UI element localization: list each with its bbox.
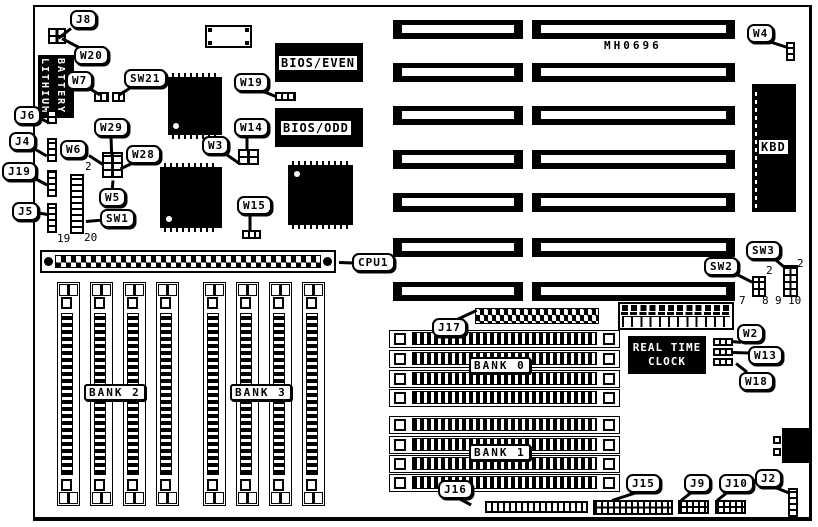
simm-socket-vertical [302, 282, 325, 506]
sw3-dip-switch [783, 265, 798, 297]
socket-end-pin [323, 257, 332, 266]
pin1-dot [294, 171, 300, 177]
socket-pin-grid [55, 255, 321, 268]
bios-even-label: BIOS/EVEN [278, 55, 358, 71]
callout-tail [110, 136, 114, 154]
callout-w14: W14 [234, 118, 269, 137]
pin-number-sw2-7: 7 [739, 295, 746, 307]
callout-w29: W29 [94, 118, 129, 137]
isa-slot-segment [532, 193, 735, 212]
pin-number-sw3-9: 9 [775, 295, 782, 307]
isa-slot-segment [532, 150, 735, 169]
w18-jumper [713, 358, 733, 366]
qfp-chip [160, 167, 222, 228]
socket-end-pin [44, 257, 53, 266]
callout-w28: W28 [126, 145, 161, 164]
isa-slot-segment [393, 150, 523, 169]
edge-power-pin [773, 436, 781, 444]
qfp-chip [288, 165, 353, 225]
rtc-chip: REAL TIME CLOCK [628, 336, 706, 374]
callout-w20: W20 [74, 46, 109, 65]
callout-tail [339, 261, 353, 264]
pin-number-sw3-2: 2 [797, 258, 804, 270]
isa-slot-segment [393, 63, 523, 82]
w19-jumper [275, 92, 296, 101]
j19-pins [47, 170, 57, 197]
bank0-label: BANK 0 [469, 357, 531, 374]
callout-tail [249, 214, 252, 231]
simm-socket-horizontal [389, 389, 620, 407]
j10-header [715, 500, 746, 514]
callout-j8: J8 [70, 10, 97, 29]
simm-socket-horizontal [389, 416, 620, 434]
bank3-label: BANK 3 [230, 384, 292, 401]
callout-w18: W18 [739, 372, 774, 391]
callout-tail [733, 351, 749, 355]
battery-label-line1: LITHIUM [39, 58, 50, 114]
w4-jumper [786, 42, 795, 61]
callout-j4: J4 [9, 132, 36, 151]
power-connector [618, 302, 734, 330]
simm-socket-vertical [57, 282, 80, 506]
callout-j9: J9 [684, 474, 711, 493]
callout-tail [246, 136, 249, 151]
pin1-dot [173, 123, 179, 129]
isa-slot-segment [393, 20, 523, 39]
bios-even-chip: BIOS/EVEN [275, 43, 363, 82]
qfp-chip [168, 77, 222, 135]
pin-number-sw1-20: 20 [84, 232, 97, 244]
cpu-socket [40, 250, 336, 273]
j5-pins [47, 203, 57, 233]
callout-j17: J17 [432, 318, 467, 337]
rtc-label: REAL TIME CLOCK [628, 336, 706, 374]
callout-sw2: SW2 [704, 257, 739, 276]
callout-w19: W19 [234, 73, 269, 92]
w15-jumper [242, 230, 261, 239]
motherboard-diagram: { "board": { "id_code": "MH0696" }, "cal… [0, 0, 818, 527]
pin-number-w6-2: 2 [85, 161, 92, 173]
j9-header [678, 500, 709, 514]
edge-power-block [782, 428, 810, 463]
callout-j16: J16 [438, 480, 473, 499]
j15-header [593, 500, 673, 515]
callout-sw21: SW21 [124, 69, 167, 88]
simm-socket-vertical [156, 282, 179, 506]
j17-header [475, 308, 599, 324]
isa-slot-segment [532, 20, 735, 39]
battery-label-line2: BATTERY [55, 58, 66, 114]
callout-j6: J6 [14, 106, 41, 125]
pin1-dot [166, 216, 172, 222]
isa-slot-segment [393, 282, 523, 301]
callout-j2: J2 [755, 469, 782, 488]
isa-slot-segment [393, 238, 523, 257]
simm-socket-vertical [203, 282, 226, 506]
callout-w15: W15 [237, 196, 272, 215]
kbd-label: KBD [758, 139, 789, 155]
callout-w7: W7 [66, 71, 93, 90]
callout-sw3: SW3 [746, 241, 781, 260]
bios-odd-chip: BIOS/ODD [275, 108, 363, 147]
callout-w2: W2 [737, 324, 764, 343]
board-id-text: MH0696 [604, 39, 662, 52]
callout-w4: W4 [747, 24, 774, 43]
callout-j19: J19 [2, 162, 37, 181]
callout-cpu1: CPU1 [352, 253, 395, 272]
j16-header [485, 501, 588, 513]
edge-power-pin [773, 448, 781, 456]
callout-j10: J10 [719, 474, 754, 493]
crystal-footprint [205, 25, 252, 48]
j2-header [788, 488, 798, 517]
bank2-label: BANK 2 [84, 384, 146, 401]
w14-jumper-block [238, 149, 259, 165]
isa-slot-segment [393, 106, 523, 125]
isa-slot-segment [532, 63, 735, 82]
callout-w3: W3 [202, 136, 229, 155]
bank1-label: BANK 1 [469, 444, 531, 461]
kbd-dashed-edge [755, 88, 757, 208]
callout-sw1: SW1 [100, 209, 135, 228]
pin-number-sw2-8: 8 [762, 295, 769, 307]
callout-w6: W6 [60, 140, 87, 159]
isa-slot-segment [393, 193, 523, 212]
kbd-chip: KBD [752, 84, 796, 212]
isa-slot-segment [532, 106, 735, 125]
sw1-dip-switch [70, 174, 84, 234]
w29-w6-w28-w5-jumper-block [102, 152, 123, 178]
pin-number-sw3-10: 10 [788, 295, 801, 307]
pin-number-sw2-2: 2 [766, 265, 773, 277]
callout-j5: J5 [12, 202, 39, 221]
callout-w13: W13 [748, 346, 783, 365]
pin-number-sw1-19: 19 [57, 233, 70, 245]
w13-jumper [713, 348, 733, 356]
isa-slot-segment [532, 282, 735, 301]
isa-slot-segment [532, 238, 735, 257]
simm-socket-horizontal [389, 330, 620, 348]
j4-pins [47, 138, 57, 162]
bios-odd-label: BIOS/ODD [280, 120, 352, 136]
callout-j15: J15 [626, 474, 661, 493]
callout-w5: W5 [99, 188, 126, 207]
simm-socket-horizontal [389, 474, 620, 492]
